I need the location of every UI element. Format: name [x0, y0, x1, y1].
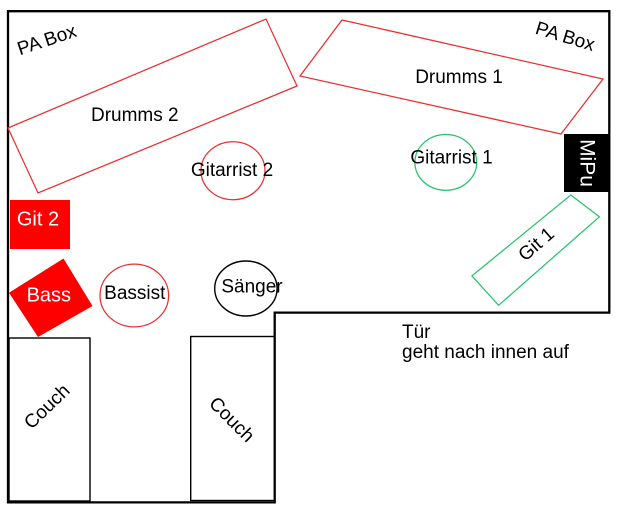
svg-text:Drumms 2: Drumms 2: [91, 105, 179, 126]
svg-text:Git 2: Git 2: [17, 209, 59, 231]
svg-text:Tür: Tür: [402, 322, 431, 343]
svg-text:Bassist: Bassist: [104, 283, 166, 304]
svg-text:MiPu: MiPu: [576, 139, 599, 187]
svg-text:Bass: Bass: [27, 285, 71, 307]
svg-text:Gitarrist 1: Gitarrist 1: [410, 148, 492, 169]
svg-text:Sänger: Sänger: [221, 277, 283, 298]
svg-text:geht nach innen auf: geht nach innen auf: [402, 342, 570, 363]
svg-text:Drumms 1: Drumms 1: [415, 67, 503, 88]
svg-text:Gitarrist 2: Gitarrist 2: [191, 160, 273, 181]
